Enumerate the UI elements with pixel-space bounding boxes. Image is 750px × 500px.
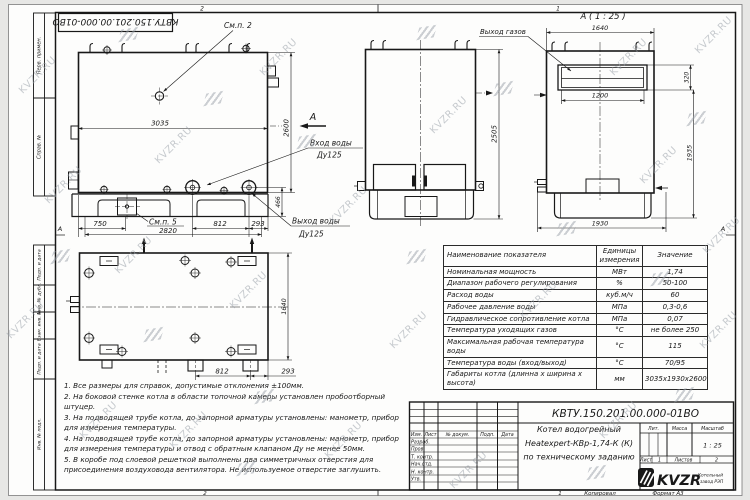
dim-1935: 1935 [686,145,694,162]
tb-col-data: Дата [500,432,513,438]
spec-value: 70/95 [643,357,708,369]
zone-top-right: 1 [556,5,560,12]
table-row: Гидравлическое сопротивление котлаМПа0,0… [444,313,708,325]
view-plan: 1640 812 293 [66,238,296,381]
kopiroval-label: Копировал [584,491,616,497]
spec-name: Рабочее давление воды [444,301,597,313]
table-row: Рабочее давление водыМПа0,3-0,6 [444,301,708,313]
table-row: Расход водыкуб.м/ч60 [444,290,708,302]
view-front: 2505 [354,40,503,226]
tb-row-utv: Утв. [411,477,421,483]
table-row: Температура уходящих газов°Сне более 250 [444,325,708,337]
tb-row-tkontr: Т. контр. [411,454,433,460]
title-block: Изм. Лист № докум. Подп. Дата Разраб. Пр… [410,402,734,490]
water-outlet-dn: Ду125 [298,230,324,239]
water-inlet-label: Вход воды [310,139,352,148]
zone-bottom-right: 1 [558,491,562,497]
note-3: 3. На подводящей трубе котла, до запорно… [64,413,408,433]
spec-value: 3035х1930х2600 [643,369,708,390]
table-row: Диапазон рабочего регулирования%50-100 [444,278,708,290]
water-inlet-dn: Ду125 [316,151,342,160]
dim-1200: 1200 [592,92,609,100]
zone-row-left: А [57,225,62,233]
spec-name: Максимальная рабочая температура воды [444,337,597,358]
water-outlet-label: Выход воды [292,217,340,226]
spec-value: 115 [643,337,708,358]
spec-unit: °С [597,325,643,337]
spec-value: 50-100 [643,278,708,290]
spec-value: 60 [643,290,708,302]
spec-col-value: Значение [643,246,708,267]
spec-value: не более 250 [643,325,708,337]
dim-3035: 3035 [151,120,169,128]
dim-1640-plan: 1640 [280,298,288,315]
dim-812: 812 [213,220,227,228]
spec-name: Номинальная мощность [444,266,597,278]
spec-value: 1,74 [643,266,708,278]
dim-1930: 1930 [592,220,609,228]
tb-product-2: Heatexpert-КВр-1,74-К (К) [525,439,633,448]
spec-name: Габариты котла (длинна х ширина х высота… [444,369,597,390]
tb-col-dokum: № докум. [445,432,470,438]
dim-293: 293 [251,220,264,228]
dim-2505: 2505 [491,125,499,143]
tb-sheets-total: 2 [715,458,718,464]
spec-unit: °С [597,337,643,358]
dim-1640-a: 1640 [592,24,609,32]
section-arrow-letter: А [309,112,317,123]
tb-col-list: Лист [423,432,436,438]
tb-row-prov: Пров. [411,447,425,453]
table-row: Номинальная мощностьМВт1,74 [444,266,708,278]
dim-812-plan: 812 [215,368,229,376]
tb-logo-text: KVZR [657,473,701,489]
table-row: Температура воды (вход/выход)°С70/95 [444,357,708,369]
tb-logo-sub-1: Котельный [698,473,723,479]
tb-sheets-label: Листов [674,458,693,464]
spec-name: Гидравлическое сопротивление котла [444,313,597,325]
zone-top-left: 2 [200,5,204,12]
spec-value: 0,3-0,6 [643,301,708,313]
spec-table: Наименование показателя Единицы измерени… [443,245,708,390]
stamp-podp-data-2: Подп. и дата [37,343,43,374]
dim-750: 750 [93,220,107,228]
view-section-a: А ( 1 : 25 ) 1640 1200 [479,12,697,232]
gas-outlet-label: Выход газов [480,28,526,36]
tb-col-izm: Изм. [411,432,422,438]
tb-row-nachotd: Нач.отд. [411,462,432,468]
tb-scale: 1 : 25 [703,442,722,450]
spec-value: 0,07 [643,313,708,325]
tb-masshtab: Масштаб [701,426,724,432]
spec-unit: % [597,278,643,290]
note-5: 5. В коробе под слоевой решеткой выполне… [64,455,408,475]
format-label: Формат А3 [652,491,684,497]
doc-number-stamp: КВТУ.150.201.00.000-01ВО [53,14,179,32]
tb-product-1: Котел водогрейный [537,425,621,434]
stamp-perv-primen: Перв. примен. [37,37,43,75]
callout-sm-p-2: См.п. 2 [224,21,252,30]
tb-logo-sub-2: завод РЭП [700,479,724,485]
stamp-inv-no-podl: Инв. № подл. [37,418,43,450]
spec-name: Расход воды [444,290,597,302]
stamp-sprav-no: Справ. № [37,135,43,159]
callout-sm-p-5: См.п. 5 [149,218,177,227]
tb-lit: Лит. [647,426,659,432]
tb-sheet-no: 1 [658,458,661,464]
spec-col-unit: Единицы измерения [597,246,643,267]
zone-bottom-left: 2 [203,491,207,497]
tb-row-razrab: Разраб. [411,440,430,446]
tb-col-podp: Подп. [480,432,495,438]
drawing-sheet: 2 1 2 1 А А Копировал Формат А3 Перв. пр… [0,0,750,500]
spec-unit: МВт [597,266,643,278]
section-a-title: А ( 1 : 25 ) [579,12,625,22]
spec-unit: МПа [597,313,643,325]
stamp-inv-no-dubl: Инв. № дубл. [37,283,43,314]
dim-293-plan: 293 [281,368,294,376]
spec-name: Диапазон рабочего регулирования [444,278,597,290]
note-4: 4. На подводящей трубе котла, до запорно… [64,434,408,454]
tb-product-3: по техническому заданию [523,453,635,462]
note-1: 1. Все размеры для справок, допустимые о… [64,381,408,391]
spec-unit: МПа [597,301,643,313]
zone-row-right: А [720,225,725,233]
spec-unit: мм [597,369,643,390]
tb-row-nkontr: Н. контр. [411,469,434,475]
doc-number-flipped: КВТУ.150.201.00.000-01ВО [53,16,179,26]
tb-doc-number: КВТУ.150.201.00.000-01ВО [552,408,699,420]
kvzr-logo-icon [638,468,654,487]
spec-name: Температура уходящих газов [444,325,597,337]
table-row: Габариты котла (длинна х ширина х высота… [444,369,708,390]
spec-unit: куб.м/ч [597,290,643,302]
tb-massa: Масса [672,426,687,432]
spec-name: Температура воды (вход/выход) [444,357,597,369]
spec-col-name: Наименование показателя [444,246,597,267]
tb-sheet-label: Лист [639,458,652,464]
dim-2820: 2820 [159,227,177,235]
dim-320: 320 [684,72,691,84]
spec-unit: °С [597,357,643,369]
dim-2600: 2600 [283,119,291,137]
margin-stamp-column: Перв. примен. Справ. № Подп. и дата Инв.… [34,13,56,490]
dim-466: 466 [275,196,282,208]
stamp-podp-data-1: Подп. и дата [37,249,43,280]
technical-notes: 1. Все размеры для справок, допустимые о… [64,381,408,475]
view-side: См.п. 5 См.п. 2 3035 2600 466 750 812 29… [69,21,364,239]
note-2: 2. На боковой стенке котла в области топ… [64,392,408,412]
table-row: Максимальная рабочая температура воды°С1… [444,337,708,358]
stamp-vzam-inv-no: Взам. инв. № [37,310,43,341]
